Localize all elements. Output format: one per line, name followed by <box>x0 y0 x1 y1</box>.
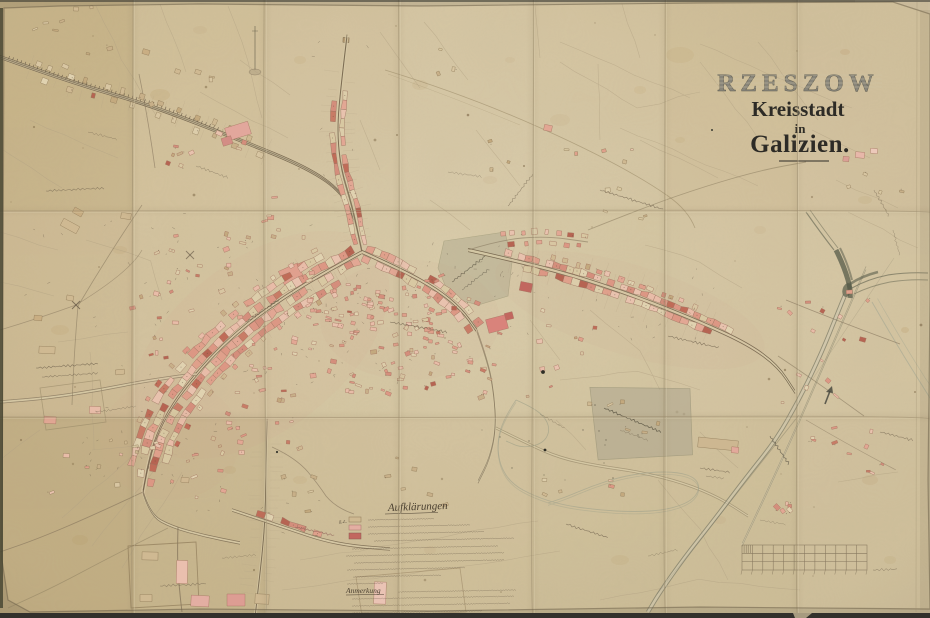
svg-text:Anmerkung: Anmerkung <box>345 586 381 595</box>
svg-text:g.Z.: g.Z. <box>339 520 347 525</box>
